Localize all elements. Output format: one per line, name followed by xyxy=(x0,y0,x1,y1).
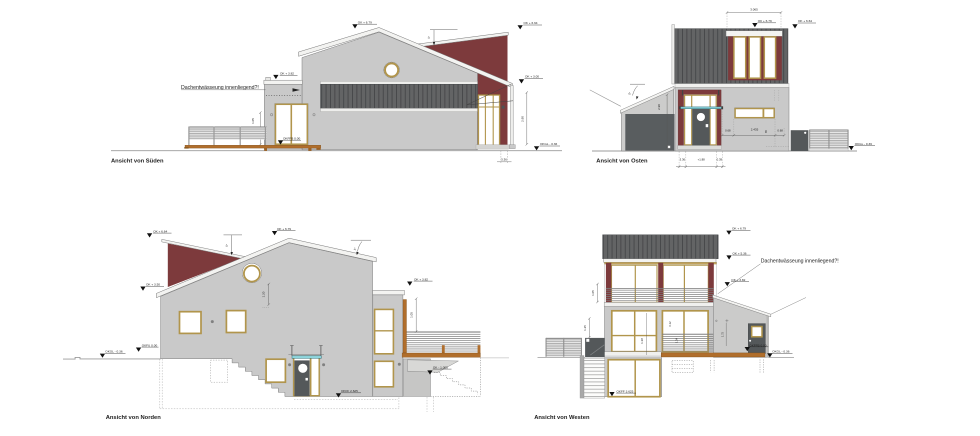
svg-text:Ansicht von Norden: Ansicht von Norden xyxy=(106,415,162,421)
svg-text:OK + 5.36: OK + 5.36 xyxy=(733,251,747,255)
svg-text:3.36: 3.36 xyxy=(501,157,507,161)
svg-text:5°: 5° xyxy=(627,91,632,95)
svg-text:OKFF 2.625: OKFF 2.625 xyxy=(341,389,358,393)
svg-text:OK - 1.005: OK - 1.005 xyxy=(433,365,448,369)
svg-text:Dachentwässeung innenliegend?!: Dachentwässeung innenliegend?! xyxy=(761,259,839,265)
svg-text:OKGL - 0.36: OKGL - 0.36 xyxy=(105,350,123,354)
svg-text:0.68: 0.68 xyxy=(777,129,783,133)
svg-text:OK + 6.79: OK + 6.79 xyxy=(358,20,372,24)
svg-text:OK + 6.79: OK + 6.79 xyxy=(277,227,291,231)
svg-text:Ansicht von Westen: Ansicht von Westen xyxy=(534,415,590,421)
svg-text:3.36: 3.36 xyxy=(680,158,686,162)
svg-text:OK + 3.82: OK + 3.82 xyxy=(280,72,294,76)
svg-text:Ansicht von Süden: Ansicht von Süden xyxy=(111,158,164,164)
svg-text:2.435: 2.435 xyxy=(751,128,759,132)
svg-text:OK + 6.79: OK + 6.79 xyxy=(758,19,772,23)
svg-text:1.34: 1.34 xyxy=(674,337,678,343)
svg-text:OK + 6.64: OK + 6.64 xyxy=(524,21,538,25)
svg-text:OK + 6.64: OK + 6.64 xyxy=(798,19,812,23)
svg-text:3.065: 3.065 xyxy=(750,8,758,12)
svg-text:1.05: 1.05 xyxy=(410,312,414,318)
svg-text:OKGL - 0.36: OKGL - 0.36 xyxy=(772,350,790,354)
svg-text:0.68: 0.68 xyxy=(725,129,731,133)
svg-text:0.12: 0.12 xyxy=(668,321,672,327)
svg-text:5°: 5° xyxy=(353,247,358,251)
svg-text:OK + 6.64: OK + 6.64 xyxy=(153,229,167,233)
svg-text:OKGL - 0.36: OKGL - 0.36 xyxy=(540,142,558,146)
svg-text:OK + 6.79: OK + 6.79 xyxy=(732,227,746,231)
svg-text:1.20: 1.20 xyxy=(262,291,266,297)
svg-text:1.05: 1.05 xyxy=(591,290,595,296)
svg-text:5°: 5° xyxy=(225,244,230,248)
svg-text:OKFFB 0.00: OKFFB 0.00 xyxy=(283,136,300,140)
svg-text:1.25: 1.25 xyxy=(583,325,587,331)
svg-text:2.90: 2.90 xyxy=(521,116,525,122)
svg-text:+1.88: +1.88 xyxy=(698,158,706,162)
svg-text:OKFU 0.00: OKFU 0.00 xyxy=(142,343,158,347)
svg-text:OKFF 3.625: OKFF 3.625 xyxy=(617,389,634,393)
svg-text:2.90: 2.90 xyxy=(657,104,661,110)
svg-text:1.75: 1.75 xyxy=(721,331,725,337)
svg-text:OKGL - 0.36: OKGL - 0.36 xyxy=(855,142,873,146)
svg-text:Ansicht von Osten: Ansicht von Osten xyxy=(596,158,648,164)
svg-text:OK + 3.50: OK + 3.50 xyxy=(146,283,160,287)
svg-text:OK + 3.00: OK + 3.00 xyxy=(525,75,539,79)
svg-text:1.05: 1.05 xyxy=(251,118,255,124)
svg-text:5°: 5° xyxy=(427,35,432,39)
svg-text:0.39: 0.39 xyxy=(717,158,723,162)
svg-text:1.38: 1.38 xyxy=(640,338,644,344)
svg-text:OK + 3.82: OK + 3.82 xyxy=(414,277,428,281)
svg-text:OK + 3.82: OK + 3.82 xyxy=(731,278,745,282)
